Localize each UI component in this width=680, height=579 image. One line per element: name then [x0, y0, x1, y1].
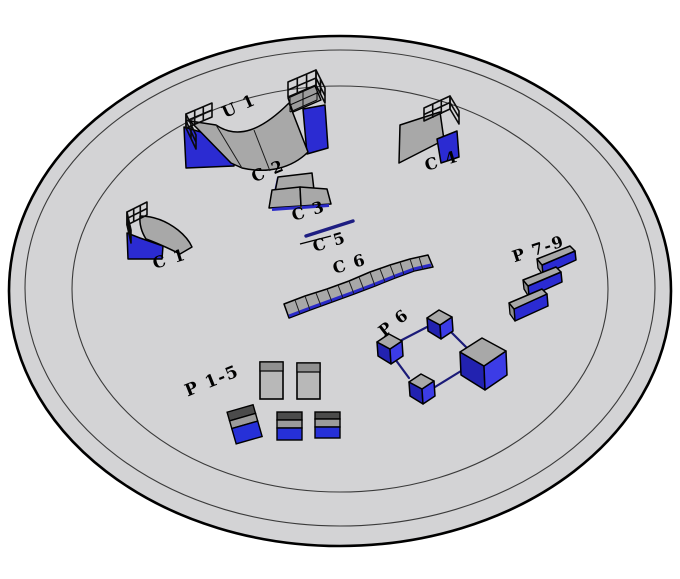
skatepark-3d-render: U 1 C 1 C 2 C 3 C 4 C 5 C 6 P 6 P 1-5 P … [0, 0, 680, 579]
p15-tall-box-2 [297, 363, 320, 399]
p15-cube-2 [277, 412, 302, 440]
p15-tall-box-1 [260, 362, 283, 399]
render-canvas: U 1 C 1 C 2 C 3 C 4 C 5 C 6 P 6 P 1-5 P … [0, 0, 680, 579]
u1-right-base-blue-face [303, 105, 328, 154]
p15-cube-3 [315, 412, 340, 438]
